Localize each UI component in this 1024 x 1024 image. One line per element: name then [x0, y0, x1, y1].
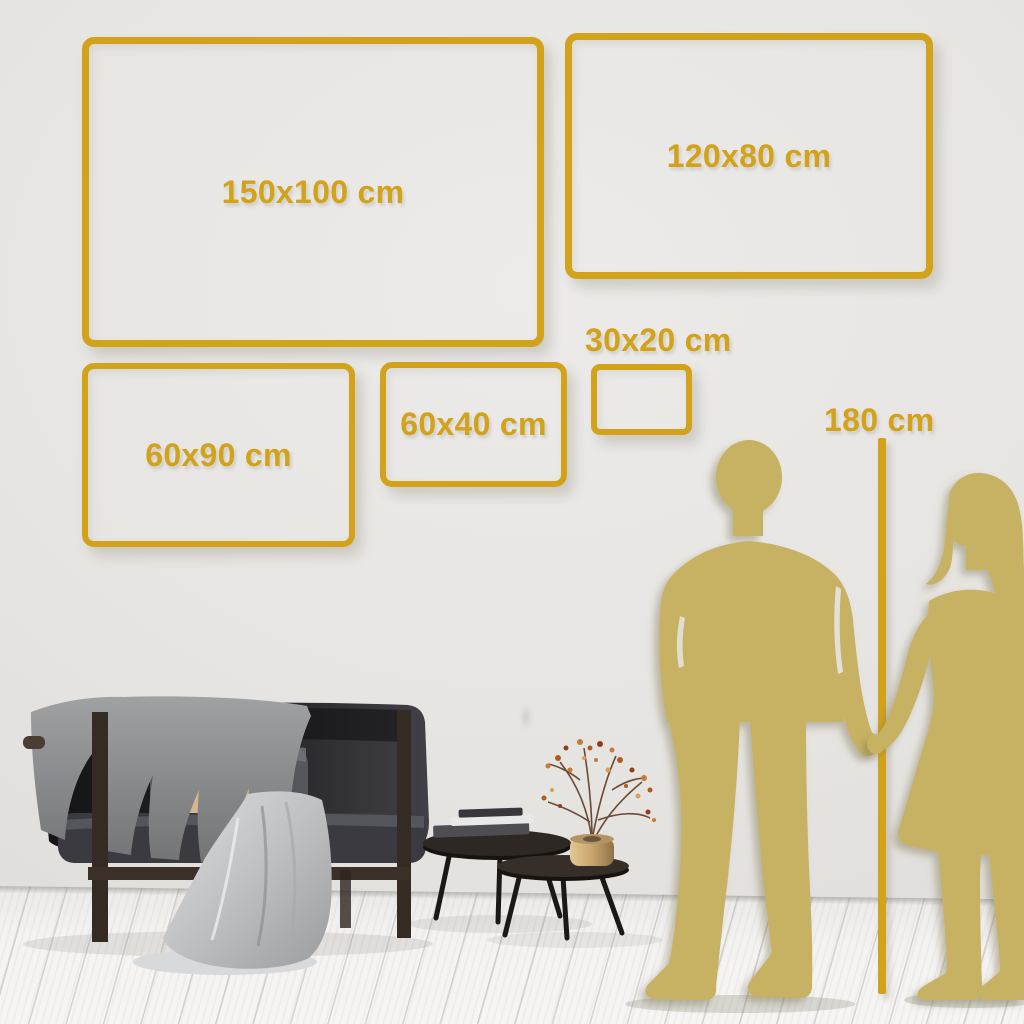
size-guide-scene: 150x100 cm 120x80 cm 60x90 cm 60x40 cm 3… — [0, 0, 1024, 1024]
gold-vase — [570, 834, 614, 866]
size-label-120x80: 120x80 cm — [667, 138, 832, 175]
woman-hair-wisp — [926, 504, 953, 585]
size-frame-30x20 — [591, 364, 692, 435]
size-frame-60x90: 60x90 cm — [82, 363, 355, 547]
wall-smudge-shadow — [519, 700, 533, 734]
seat-cushion — [58, 813, 426, 863]
man-side-gap — [677, 616, 685, 668]
size-frame-150x100: 150x100 cm — [82, 37, 544, 347]
gray-pillow — [150, 744, 308, 830]
size-label-60x90: 60x90 cm — [145, 437, 292, 474]
size-label-30x20: 30x20 cm — [585, 322, 732, 359]
height-marker-label: 180 cm — [824, 402, 934, 439]
plant-berries — [542, 739, 657, 822]
books — [433, 807, 534, 837]
size-label-150x100: 150x100 cm — [222, 174, 405, 211]
beige-pillow — [167, 781, 285, 837]
size-label-60x40: 60x40 cm — [400, 406, 547, 443]
dried-branch-plant — [548, 748, 650, 840]
size-frame-120x80: 120x80 cm — [565, 33, 933, 279]
size-frame-60x40: 60x40 cm — [380, 362, 567, 487]
woman-hair — [949, 473, 1024, 628]
height-ruler-line — [878, 438, 886, 994]
gray-blanket — [31, 696, 311, 862]
man-arm-gap — [834, 586, 843, 674]
floor — [0, 886, 1024, 1024]
